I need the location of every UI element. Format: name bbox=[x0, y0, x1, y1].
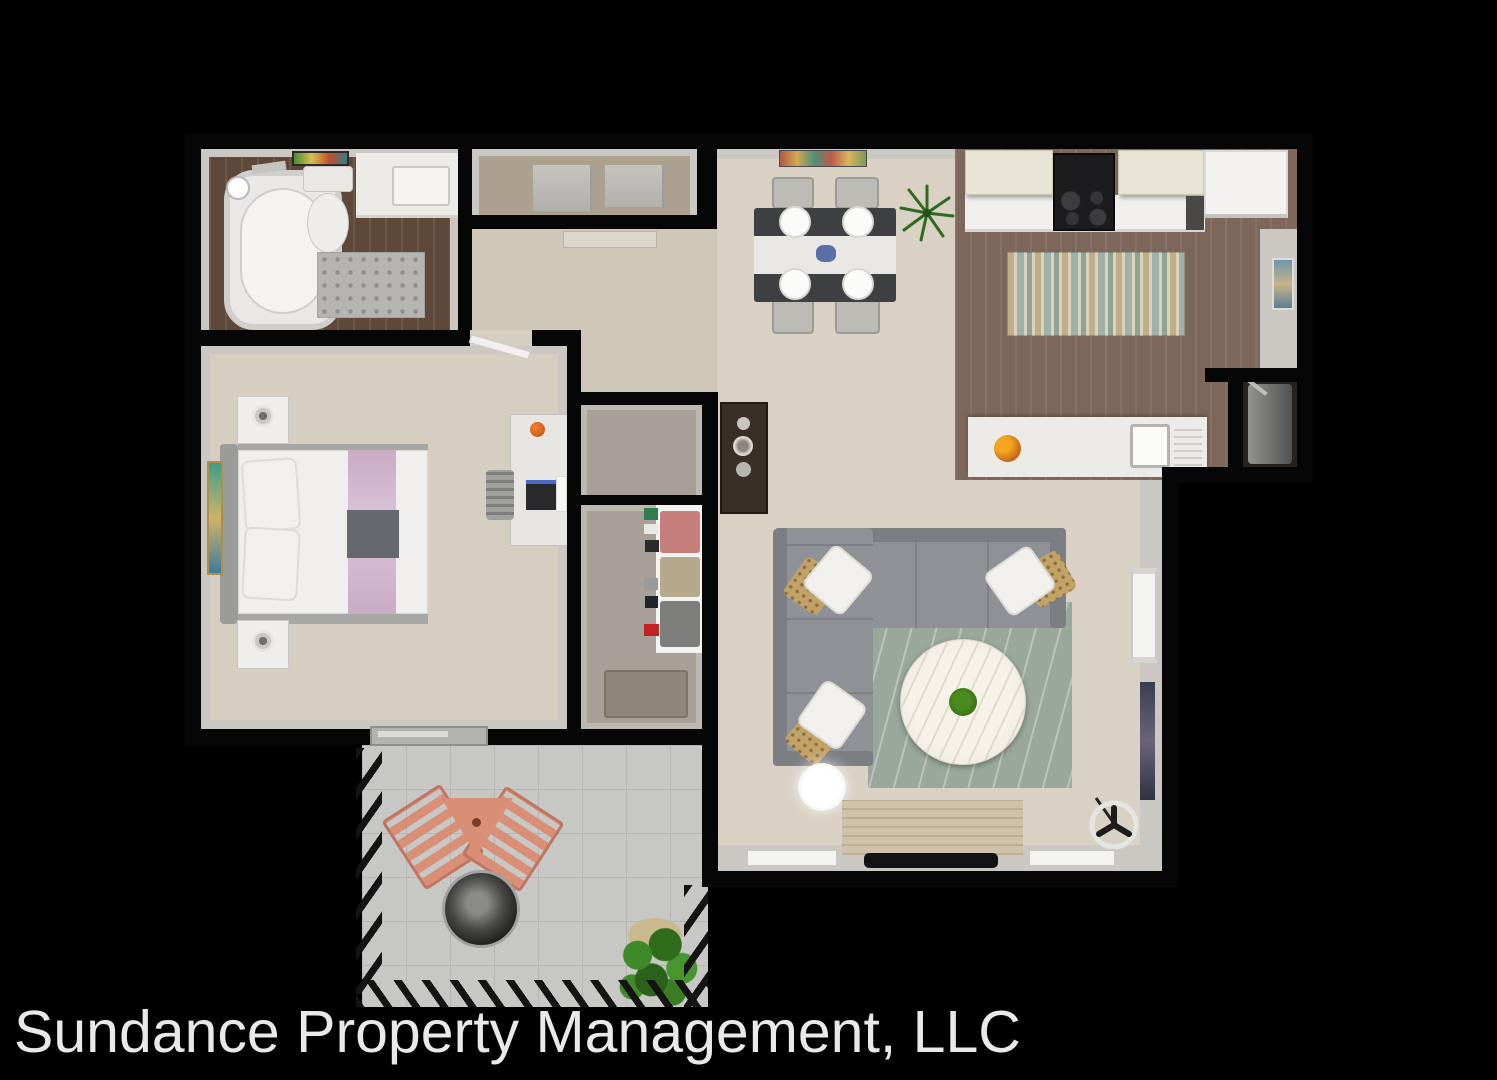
wall-laundry-right bbox=[697, 133, 717, 229]
place-setting bbox=[842, 268, 874, 300]
wall-kitchen-right bbox=[1297, 133, 1313, 483]
dining-chair bbox=[772, 177, 814, 209]
living-bottom-window bbox=[746, 849, 838, 867]
table-centerpiece bbox=[816, 245, 836, 262]
dining-chair bbox=[835, 177, 879, 209]
standing-fan bbox=[1086, 792, 1142, 854]
desk-ornament bbox=[530, 422, 545, 437]
table-lamp bbox=[252, 630, 274, 652]
upper-cabinet bbox=[1118, 150, 1204, 195]
desk-chair bbox=[486, 470, 514, 520]
bed-pillow bbox=[241, 527, 301, 602]
wall-outer-left bbox=[185, 133, 201, 745]
closet-item bbox=[644, 578, 658, 590]
tv-console bbox=[842, 800, 1023, 855]
kitchen-sink bbox=[1130, 424, 1170, 468]
suitcase bbox=[604, 670, 688, 718]
patio-sliding-door-panel bbox=[378, 731, 448, 737]
console-decor bbox=[737, 417, 750, 430]
wall-kitchen-bottom bbox=[1162, 467, 1313, 483]
living-right-wall-band bbox=[1140, 480, 1162, 871]
kitchen-wall-art bbox=[1272, 258, 1294, 310]
patio-railing-left bbox=[356, 748, 382, 994]
upper-cabinet bbox=[965, 150, 1053, 195]
closet-item bbox=[644, 508, 658, 520]
dining-plant bbox=[895, 180, 959, 244]
desk-papers bbox=[556, 476, 567, 512]
closet-upper-floor bbox=[581, 404, 702, 495]
place-setting bbox=[779, 206, 811, 238]
closet-item bbox=[644, 624, 659, 636]
patio-railing-right bbox=[684, 885, 708, 1007]
folded-clothes-pink bbox=[660, 511, 700, 553]
closet-item bbox=[645, 540, 659, 552]
laptop bbox=[526, 480, 556, 510]
refrigerator bbox=[1204, 150, 1288, 218]
stove-cooktop bbox=[1053, 153, 1115, 231]
vanity-sink bbox=[392, 166, 450, 206]
folded-clothes-gray bbox=[660, 601, 700, 647]
bedroom-wall-art bbox=[207, 461, 223, 575]
counter-end-panel bbox=[1186, 196, 1204, 230]
dining-chair bbox=[772, 297, 814, 334]
bathroom-wall-art bbox=[292, 151, 349, 166]
washer-unit bbox=[533, 165, 593, 211]
footer-caption: Sundance Property Management, LLC bbox=[14, 998, 1021, 1066]
console-decor bbox=[736, 462, 751, 477]
wall-closet-top bbox=[567, 392, 718, 405]
wall-laundry-bottom bbox=[458, 215, 703, 229]
toilet-tank bbox=[303, 166, 353, 192]
wall-living-left bbox=[702, 392, 718, 887]
place-setting bbox=[842, 206, 874, 238]
dining-chair bbox=[835, 297, 880, 334]
floor-lamp bbox=[798, 763, 846, 811]
console-decor bbox=[733, 436, 753, 456]
water-heater bbox=[1248, 384, 1292, 464]
place-setting bbox=[779, 268, 811, 300]
dining-wall-art bbox=[779, 150, 867, 167]
closet-item bbox=[644, 524, 658, 534]
wall-living-right bbox=[1162, 467, 1178, 887]
living-wall-picture bbox=[1140, 682, 1155, 800]
wall-living-bottom bbox=[702, 871, 1178, 887]
kitchen-rug bbox=[1007, 252, 1185, 336]
wall-bathroom-right bbox=[458, 149, 472, 345]
hall-shelf bbox=[563, 231, 657, 248]
floorplan-image: Sundance Property Management, LLC bbox=[0, 0, 1497, 1080]
folded-clothes-tan bbox=[660, 557, 700, 597]
bathroom-rug bbox=[317, 252, 425, 318]
bed-pillow bbox=[241, 457, 302, 533]
wall-bedroom-top-a bbox=[185, 330, 470, 346]
living-bottom-window bbox=[1028, 849, 1116, 867]
wall-outer-top bbox=[185, 133, 1313, 149]
patio-table-knob bbox=[472, 818, 481, 827]
sink-drainboard bbox=[1174, 428, 1202, 466]
fruit-bowl bbox=[994, 435, 1021, 462]
fire-pit bbox=[442, 870, 520, 948]
coffee-table-plant bbox=[949, 688, 977, 716]
dryer-unit bbox=[605, 165, 665, 207]
wall-utility-left bbox=[1228, 382, 1243, 467]
shower-head bbox=[226, 176, 250, 200]
closet-item bbox=[645, 596, 658, 608]
toilet-bowl bbox=[307, 193, 349, 253]
table-lamp bbox=[252, 405, 274, 427]
bed-throw-blanket bbox=[347, 510, 399, 558]
wall-closet-divider bbox=[581, 495, 702, 505]
tv bbox=[864, 853, 998, 868]
living-side-window bbox=[1131, 568, 1157, 663]
